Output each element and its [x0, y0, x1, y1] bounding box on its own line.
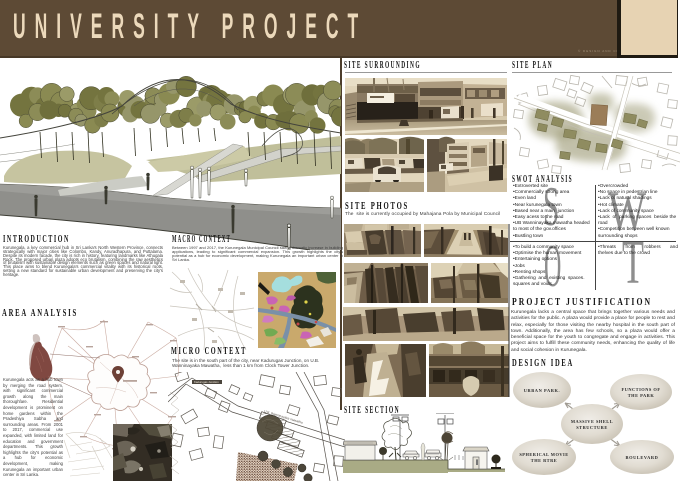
svg-text:THE PARK: THE PARK [628, 393, 655, 398]
svg-text:MASSIVE SHELL: MASSIVE SHELL [571, 419, 613, 424]
svg-text:URBAN PARK.: URBAN PARK. [524, 388, 561, 393]
svg-text:SPHERICAL MOVIE: SPHERICAL MOVIE [519, 452, 568, 457]
svg-text:Kadurugas Junction: Kadurugas Junction [194, 380, 219, 384]
svg-text:THE RTRE: THE RTRE [531, 458, 557, 463]
svg-text:BOULEVARD: BOULEVARD [626, 455, 659, 460]
svg-text:STRUCTURE: STRUCTURE [576, 425, 608, 430]
svg-text:FUNCTIONS OF: FUNCTIONS OF [621, 387, 660, 392]
